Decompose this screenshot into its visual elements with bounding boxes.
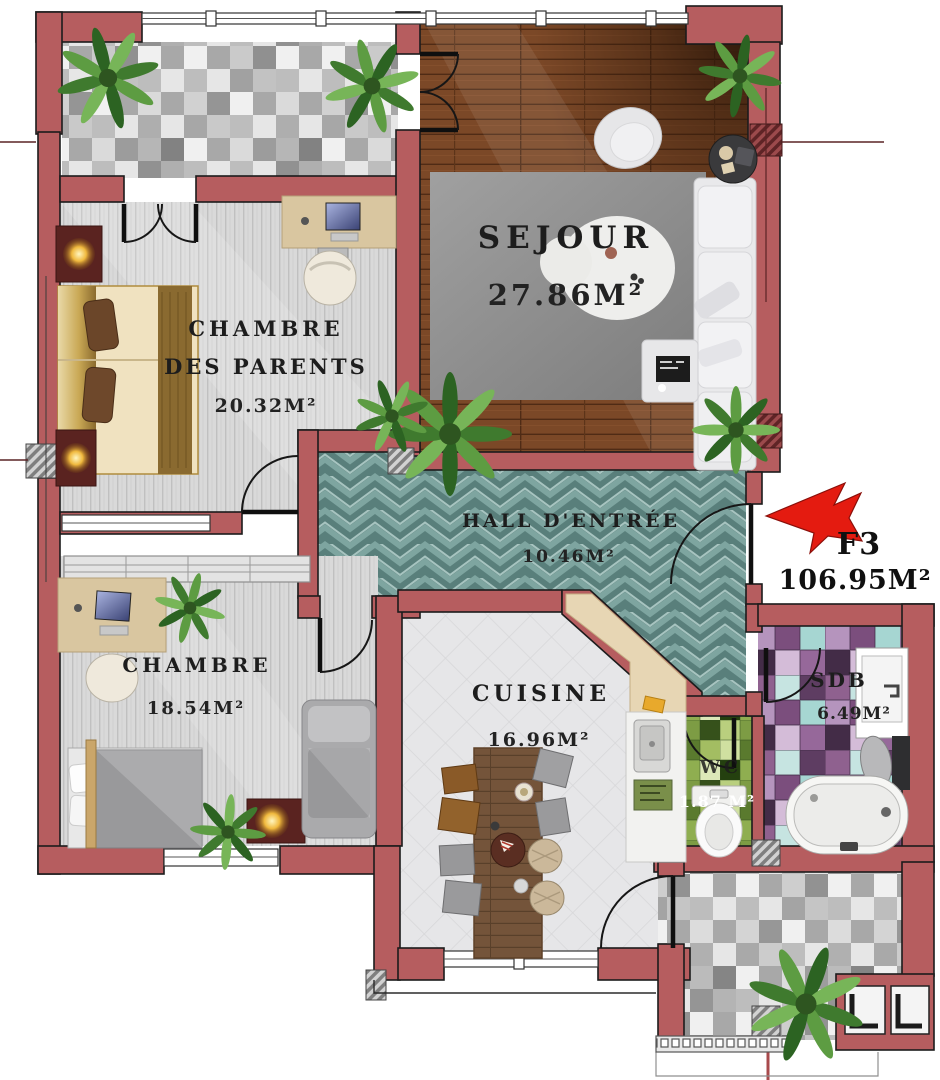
hall-area: 10.46M²: [522, 547, 616, 567]
wall-chambre-cuisine: [376, 596, 402, 846]
wall-cuisine-left: [374, 846, 400, 980]
cuisine-area: 16.96M²: [488, 729, 591, 751]
desk-item: [301, 217, 309, 225]
tub-drain: [881, 807, 891, 817]
window-tick: [316, 11, 326, 26]
wall-cuisine-top: [398, 590, 562, 612]
sejour-area: 27.86M²: [488, 278, 645, 312]
hall-label: HALL D'ENTRÉE: [462, 509, 680, 532]
unit-total-area: 106.95M²: [778, 565, 931, 596]
hatch-marker: [366, 970, 386, 1000]
cutting-board: [634, 780, 672, 810]
sofa-cushion: [698, 186, 752, 248]
wall-left-upper: [38, 132, 60, 448]
table-item: [734, 147, 754, 167]
chambre-label: CHAMBRE: [122, 653, 271, 677]
parents-area: 20.32M²: [215, 395, 318, 417]
sdb-area: 6.49M²: [817, 704, 891, 724]
wall-top-left-v: [36, 12, 62, 134]
window-tick: [206, 11, 216, 26]
lamp-glow: [63, 238, 95, 270]
toilet-seat: [705, 814, 733, 850]
sdb-label: SDB: [810, 668, 868, 692]
hatch-marker: [752, 840, 780, 866]
desk-keyboard: [100, 626, 128, 635]
wall-chambre-top-stub: [298, 596, 320, 618]
wall-right-balcony: [902, 862, 934, 976]
tub-knob: [810, 794, 818, 802]
window-tick: [536, 11, 546, 26]
chair-gray: [442, 880, 481, 916]
window-tick: [426, 11, 436, 26]
desk-chair: [304, 251, 356, 305]
terrace-outline: [374, 980, 656, 993]
floor-plan-page: SEJOUR 27.86M² CHAMBRE DES PARENTS 20.32…: [0, 0, 940, 1080]
wall-left-lower: [38, 478, 60, 874]
balcony-railing: [656, 1036, 792, 1052]
unit-label: F3: [837, 527, 881, 562]
floor-plan-canvas: SEJOUR 27.86M² CHAMBRE DES PARENTS 20.32…: [0, 0, 940, 1080]
table-item: [719, 146, 733, 160]
sdb-toilet-tank: [892, 736, 910, 790]
wc-area: 1.87 M²: [679, 792, 755, 811]
wall-balcony-parents-left: [60, 176, 124, 202]
armchair-back: [308, 706, 370, 742]
unit-annotation: F3 106.95M²: [766, 483, 932, 596]
headboard: [86, 740, 96, 848]
plate: [514, 879, 528, 893]
chair-gray: [536, 798, 571, 836]
wall-hall-right-top: [746, 472, 762, 504]
tv-dot: [658, 384, 666, 392]
wall-sdb-door-stub-bottom: [746, 692, 762, 716]
tub-faucet: [840, 842, 858, 851]
lamp-glow: [61, 443, 91, 473]
pillow: [83, 298, 120, 352]
desk-monitor: [326, 203, 360, 230]
wall-wc-sdb: [752, 716, 764, 848]
wall-sdb-wc-bottom: [654, 846, 934, 872]
wall-cuisine-bottom-left: [398, 948, 444, 980]
wall-hall-right-bottom: [746, 584, 762, 606]
hatch-marker: [26, 444, 58, 478]
table-dot: [491, 822, 500, 831]
chair-wood: [438, 798, 480, 835]
wall-bottom-chambre-right: [280, 846, 376, 874]
bed-runner: [158, 286, 192, 474]
parents-label-2: DES PARENTS: [164, 354, 368, 379]
cake: [491, 833, 525, 867]
desk-keyboard: [331, 233, 358, 241]
wc-label: WC: [699, 757, 743, 778]
wall-balcony-left-stub: [658, 862, 684, 876]
cuisine-label: CUISINE: [472, 681, 610, 707]
chair-gray: [439, 844, 475, 876]
wall-balcony-left-lower: [658, 944, 684, 1040]
parents-label-1: CHAMBRE: [188, 316, 343, 341]
sejour-label: SEJOUR: [478, 220, 654, 256]
sink-drain: [649, 741, 655, 747]
desk-item: [74, 604, 82, 612]
cup-inner: [520, 788, 528, 796]
window-tick: [646, 11, 656, 26]
pillow: [82, 367, 117, 423]
chambre-area: 18.54M²: [147, 698, 245, 719]
desk-monitor: [95, 591, 131, 621]
wall-bottom-chambre-left: [38, 846, 164, 874]
chair-wood: [442, 764, 479, 794]
wall-top-right-block: [686, 6, 782, 44]
